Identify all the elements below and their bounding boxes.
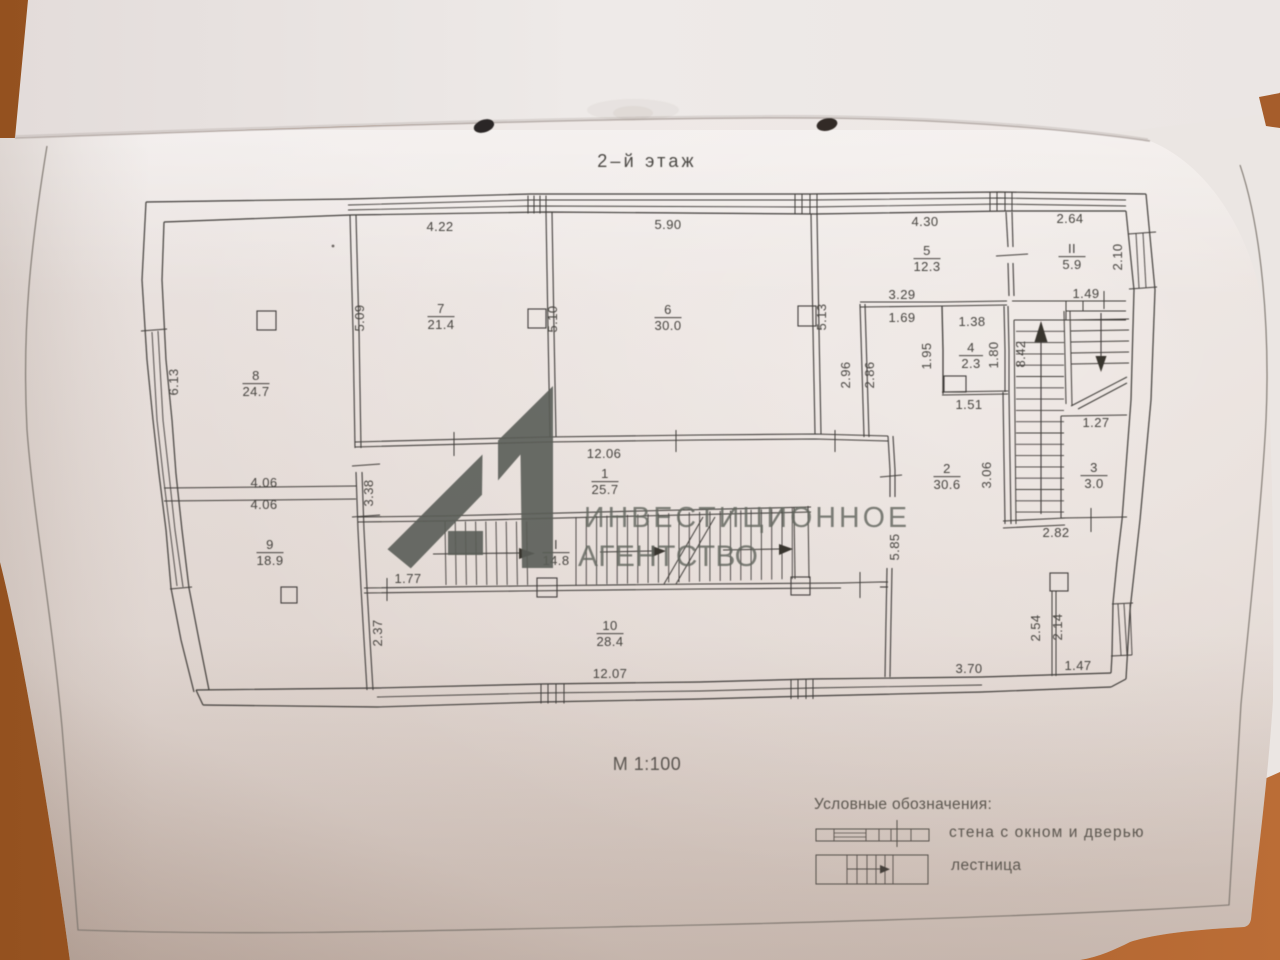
svg-text:5: 5 bbox=[923, 243, 931, 258]
svg-text:2.37: 2.37 bbox=[370, 620, 385, 647]
svg-text:ИНВЕСТИЦИОННОЕ: ИНВЕСТИЦИОННОЕ bbox=[584, 502, 910, 534]
svg-text:4.30: 4.30 bbox=[912, 214, 939, 229]
svg-text:2.86: 2.86 bbox=[862, 362, 877, 389]
svg-text:2.3: 2.3 bbox=[961, 356, 980, 371]
svg-text:5.9: 5.9 bbox=[1062, 257, 1081, 272]
svg-text:7: 7 bbox=[437, 301, 445, 316]
svg-text:5.10: 5.10 bbox=[545, 306, 560, 333]
svg-text:2: 2 bbox=[943, 461, 951, 476]
svg-text:2.96: 2.96 bbox=[838, 362, 853, 389]
svg-text:АГЕНТСТВО: АГЕНТСТВО bbox=[578, 540, 758, 573]
svg-text:8.42: 8.42 bbox=[1013, 341, 1028, 368]
svg-text:стена с окном и дверью: стена с окном и дверью bbox=[949, 824, 1145, 841]
svg-text:18.9: 18.9 bbox=[257, 553, 284, 568]
svg-text:5.85: 5.85 bbox=[887, 534, 902, 561]
svg-text:4.06: 4.06 bbox=[251, 475, 278, 490]
svg-text:8: 8 bbox=[252, 368, 260, 383]
svg-text:Условные обозначения:: Условные обозначения: bbox=[814, 796, 992, 813]
svg-text:6: 6 bbox=[664, 302, 672, 317]
svg-text:3.38: 3.38 bbox=[361, 480, 376, 507]
svg-text:2.54: 2.54 bbox=[1028, 615, 1043, 642]
svg-text:12.07: 12.07 bbox=[593, 666, 628, 681]
svg-text:II: II bbox=[1068, 241, 1076, 256]
svg-text:4: 4 bbox=[967, 340, 975, 355]
svg-text:3.06: 3.06 bbox=[979, 462, 994, 489]
svg-text:1.80: 1.80 bbox=[986, 342, 1001, 369]
svg-text:30.6: 30.6 bbox=[934, 477, 961, 492]
svg-text:9: 9 bbox=[266, 537, 274, 552]
svg-text:1.77: 1.77 bbox=[395, 571, 422, 586]
svg-text:12.06: 12.06 bbox=[587, 446, 622, 461]
svg-text:12.3: 12.3 bbox=[914, 259, 941, 274]
svg-text:5.13: 5.13 bbox=[814, 304, 829, 331]
svg-text:5.90: 5.90 bbox=[655, 217, 682, 232]
svg-text:2.10: 2.10 bbox=[1110, 244, 1125, 271]
svg-text:1.51: 1.51 bbox=[956, 397, 983, 412]
svg-text:3.70: 3.70 bbox=[956, 661, 983, 676]
svg-text:лестница: лестница bbox=[951, 857, 1021, 874]
svg-text:25.7: 25.7 bbox=[592, 482, 619, 497]
svg-text:30.0: 30.0 bbox=[655, 318, 682, 333]
svg-text:28.4: 28.4 bbox=[597, 634, 624, 649]
svg-text:М 1:100: М 1:100 bbox=[613, 754, 682, 774]
svg-text:4.06: 4.06 bbox=[251, 497, 278, 512]
svg-text:10: 10 bbox=[602, 618, 617, 633]
svg-text:2.64: 2.64 bbox=[1057, 211, 1084, 226]
svg-text:1.38: 1.38 bbox=[959, 314, 986, 329]
svg-text:2.14: 2.14 bbox=[1050, 614, 1065, 641]
svg-text:3.0: 3.0 bbox=[1084, 476, 1103, 491]
svg-text:3.29: 3.29 bbox=[889, 287, 916, 302]
svg-text:1.47: 1.47 bbox=[1065, 658, 1092, 673]
svg-text:4.22: 4.22 bbox=[427, 219, 454, 234]
svg-text:24.7: 24.7 bbox=[243, 384, 270, 399]
svg-text:1.49: 1.49 bbox=[1073, 286, 1100, 301]
svg-text:2–й этаж: 2–й этаж bbox=[597, 151, 697, 171]
svg-text:2.82: 2.82 bbox=[1043, 525, 1070, 540]
svg-text:6.13: 6.13 bbox=[166, 369, 181, 396]
svg-text:5.09: 5.09 bbox=[352, 305, 367, 332]
svg-text:1.95: 1.95 bbox=[919, 343, 934, 370]
svg-text:3: 3 bbox=[1090, 460, 1098, 475]
svg-text:1.27: 1.27 bbox=[1083, 415, 1110, 430]
svg-text:I: I bbox=[554, 537, 558, 552]
svg-text:1: 1 bbox=[601, 466, 609, 481]
svg-text:21.4: 21.4 bbox=[428, 317, 455, 332]
svg-text:1.69: 1.69 bbox=[889, 310, 916, 325]
